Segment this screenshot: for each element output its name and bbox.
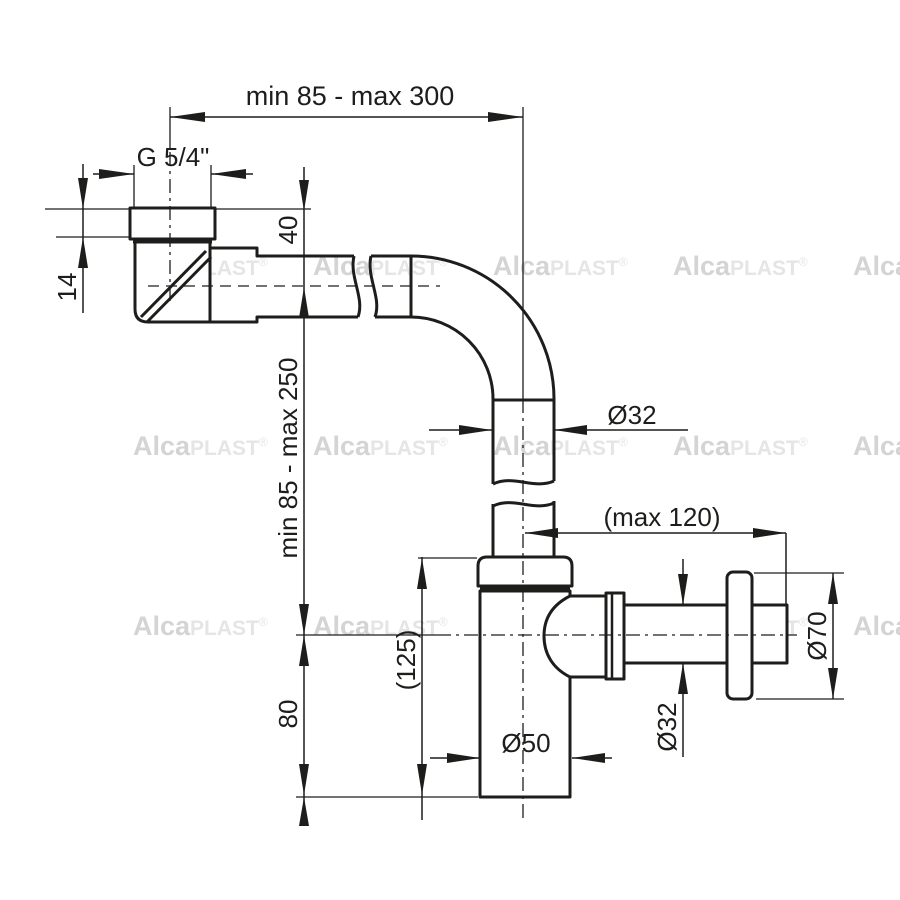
arrow-left-icon xyxy=(170,112,205,122)
trap-cap xyxy=(478,557,572,586)
outlet-elbow xyxy=(544,596,606,677)
arrow-left-icon xyxy=(525,528,558,538)
arrow-down-icon xyxy=(299,180,309,211)
trap-body-assembly xyxy=(478,557,787,797)
arrow-right-icon xyxy=(459,425,492,435)
dim-body-height-ref: (125) xyxy=(391,557,427,820)
dim-flange-diameter-label: Ø70 xyxy=(802,611,832,660)
arrow-up-icon xyxy=(299,635,309,666)
alcaplast-watermark: AlcaPLAST® xyxy=(133,431,268,461)
arrow-right-icon xyxy=(753,528,786,538)
dim-outlet-diameter-label: Ø32 xyxy=(652,702,682,751)
dim-body-diameter: Ø50 xyxy=(430,728,612,763)
arrow-up-icon xyxy=(299,797,309,826)
arrow-down-icon xyxy=(299,764,309,795)
dim-thread-label: G 5/4" xyxy=(137,142,210,172)
dim-thread-size: G 5/4" xyxy=(93,142,253,179)
alcaplast-watermark: AlcaPLAST® xyxy=(853,431,900,461)
dim-inlet-drop-label: 40 xyxy=(273,216,303,245)
arrow-right-icon xyxy=(99,169,134,179)
dim-nut-height: 14 xyxy=(52,164,88,313)
alcaplast-watermark: AlcaPLAST® xyxy=(313,431,448,461)
arrow-left-icon xyxy=(211,169,246,179)
alcaplast-watermark: AlcaPLAST® xyxy=(853,611,900,641)
dim-body-bottom-label: 80 xyxy=(273,700,303,729)
dim-nut-height-label: 14 xyxy=(52,273,82,302)
dim-body-height-ref-label: (125) xyxy=(391,630,421,691)
arrow-right-icon xyxy=(488,112,523,122)
dim-top-width: min 85 - max 300 xyxy=(170,81,523,122)
alcaplast-watermark: AlcaPLAST® xyxy=(493,431,628,461)
bend-inner-arc xyxy=(411,317,493,399)
arrow-down-icon xyxy=(828,668,838,699)
arrow-up-icon xyxy=(828,573,838,604)
arrow-down-icon xyxy=(678,574,688,605)
dim-vertical-range-label: min 85 - max 250 xyxy=(273,358,303,559)
outlet-nut xyxy=(606,593,624,679)
vpipe-break-line-2 xyxy=(493,503,554,506)
alcaplast-watermark: AlcaPLAST® xyxy=(853,251,900,281)
dim-pipe-diameter: Ø32 xyxy=(429,400,688,435)
alcaplast-watermark: AlcaPLAST® xyxy=(673,251,808,281)
dim-left-chain: 40 min 85 - max 250 80 xyxy=(273,167,309,826)
arrow-up-icon xyxy=(299,287,309,318)
outlet-pipe xyxy=(624,605,787,663)
drawing-canvas: AlcaPLAST®AlcaPLAST®AlcaPLAST®AlcaPLAST®… xyxy=(0,0,900,900)
alcaplast-watermark: AlcaPLAST® xyxy=(133,611,268,641)
inlet-nut xyxy=(130,208,215,239)
arrow-down-icon xyxy=(78,178,88,209)
dim-top-width-label: min 85 - max 300 xyxy=(246,81,455,111)
dim-pipe-diameter-label: Ø32 xyxy=(607,400,656,430)
dim-body-diameter-label: Ø50 xyxy=(501,728,550,758)
dim-flange-diameter: Ø70 xyxy=(802,573,838,699)
alcaplast-watermark: AlcaPLAST® xyxy=(313,611,448,641)
arrow-up-icon xyxy=(78,237,88,268)
dim-outlet-reach-label: (max 120) xyxy=(603,502,720,532)
arrow-left-icon xyxy=(572,753,605,763)
arrow-up-icon xyxy=(678,663,688,694)
arrow-down-icon xyxy=(299,604,309,635)
arrow-down-icon xyxy=(417,764,427,795)
alcaplast-watermark: AlcaPLAST® xyxy=(493,251,628,281)
arrow-up-icon xyxy=(417,558,427,589)
pipe-socket-bottom xyxy=(210,317,358,322)
siphon-technical-drawing: AlcaPLAST®AlcaPLAST®AlcaPLAST®AlcaPLAST®… xyxy=(0,0,900,900)
arrow-right-icon xyxy=(447,753,480,763)
alcaplast-watermark: AlcaPLAST® xyxy=(673,431,808,461)
horizontal-pipe-and-bend xyxy=(370,256,554,560)
arrow-left-icon xyxy=(554,425,587,435)
